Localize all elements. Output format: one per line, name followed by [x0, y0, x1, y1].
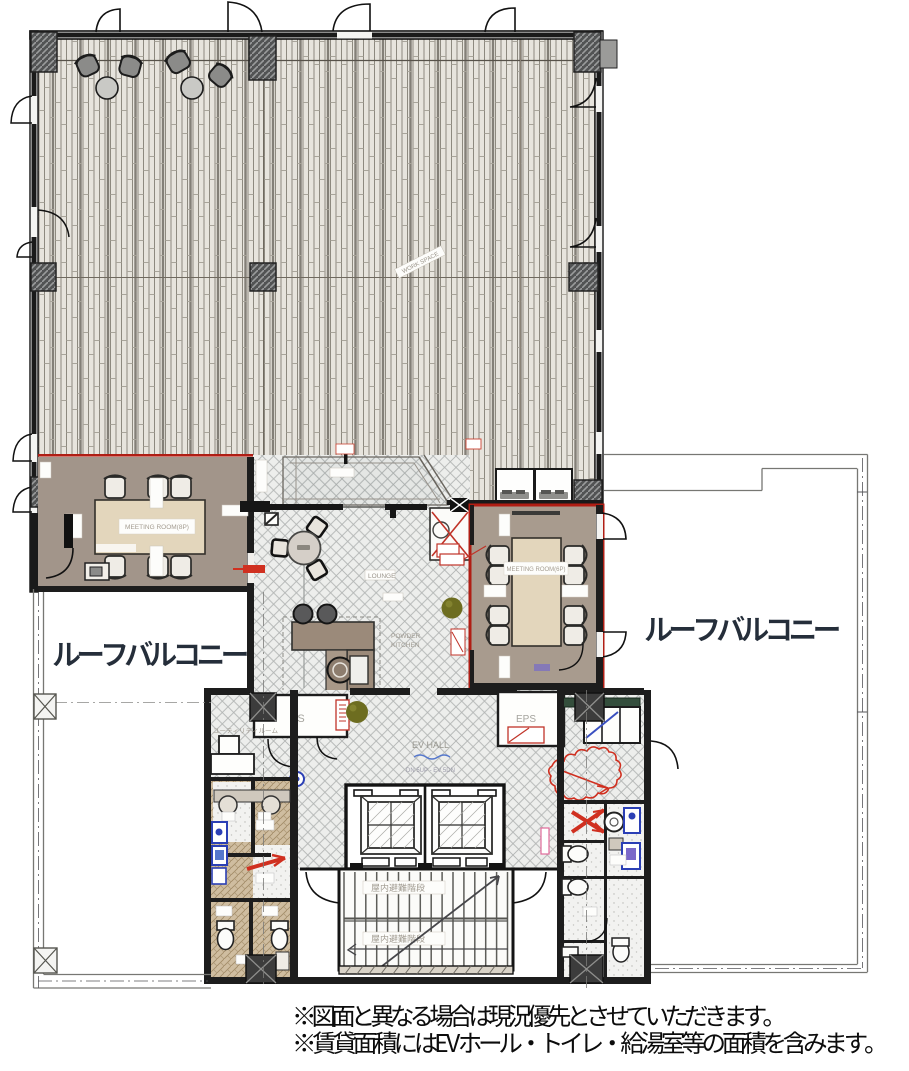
svg-text:LOUNGE: LOUNGE [368, 573, 396, 580]
svg-text:POWDER: POWDER [391, 633, 421, 640]
svg-text:MEETING ROOM(8P): MEETING ROOM(8P) [125, 524, 189, 531]
svg-text:MEETING ROOM(6P): MEETING ROOM(6P) [506, 567, 565, 573]
svg-text:EV HALL: EV HALL [412, 740, 449, 750]
svg-text:KITCHEN: KITCHEN [391, 642, 420, 649]
svg-text:EPS: EPS [516, 714, 536, 725]
svg-text:DN 5UP - EV 5DN: DN 5UP - EV 5DN [406, 768, 455, 774]
